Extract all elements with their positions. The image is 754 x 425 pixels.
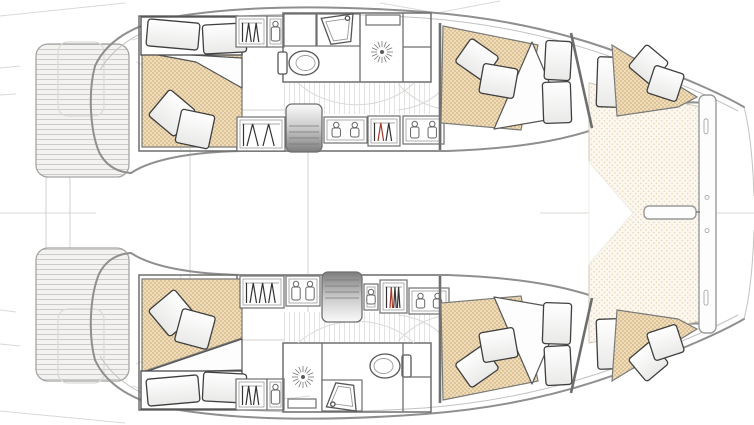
wardrobe: [236, 379, 267, 410]
stern-rig-line-bottom: [0, 411, 125, 423]
wardrobe: [236, 16, 267, 47]
hanging-locker: [237, 117, 285, 151]
pillow: [544, 40, 572, 80]
shelf-unit: [267, 379, 284, 410]
pillow: [542, 82, 571, 124]
hanging-locker: [380, 280, 407, 313]
plan-items: [0, 1, 754, 423]
pillow: [146, 19, 200, 50]
companionway-steps-port: [286, 104, 322, 152]
catamaran-floorplan-svg: [0, 0, 754, 425]
shelf-unit: [364, 284, 378, 310]
toilet: [278, 51, 319, 75]
toilet: [370, 354, 411, 378]
pillow: [146, 375, 200, 406]
bathroom-cabinet: [284, 14, 316, 46]
shower-drain: [371, 41, 393, 63]
edge-tick: [0, 344, 20, 346]
edge-tick: [0, 310, 16, 312]
shelf-unit: [324, 117, 367, 143]
shelf-unit: [267, 16, 284, 47]
swim-platform-top: [36, 44, 129, 177]
shower-bench: [366, 15, 400, 25]
shelf-unit: [403, 116, 444, 144]
throw-pillow: [479, 327, 519, 363]
companionway-steps-starboard: [322, 272, 362, 322]
floorplan-canvas: [0, 0, 754, 425]
pillow: [544, 345, 572, 385]
hanging-locker: [240, 276, 284, 308]
hanging-locker: [368, 116, 400, 146]
stern-rig-line-top: [0, 3, 125, 16]
aft-platform-outline: [46, 172, 70, 256]
swim-platform-bottom: [36, 248, 129, 381]
forward-crossbeam: [699, 95, 716, 333]
shelf-unit: [286, 276, 320, 306]
bowsprit: [644, 206, 696, 219]
shower-drain: [292, 366, 314, 388]
throw-pillow: [479, 63, 519, 99]
edge-tick: [0, 66, 20, 68]
bow-bridle-top: [744, 107, 754, 196]
throw-pillow: [175, 109, 215, 149]
rig-lines-top: [380, 1, 500, 13]
shower-bench: [288, 399, 316, 408]
pillow: [542, 303, 571, 345]
edge-tick: [0, 94, 16, 95]
bow-bridle-bottom: [744, 230, 754, 319]
